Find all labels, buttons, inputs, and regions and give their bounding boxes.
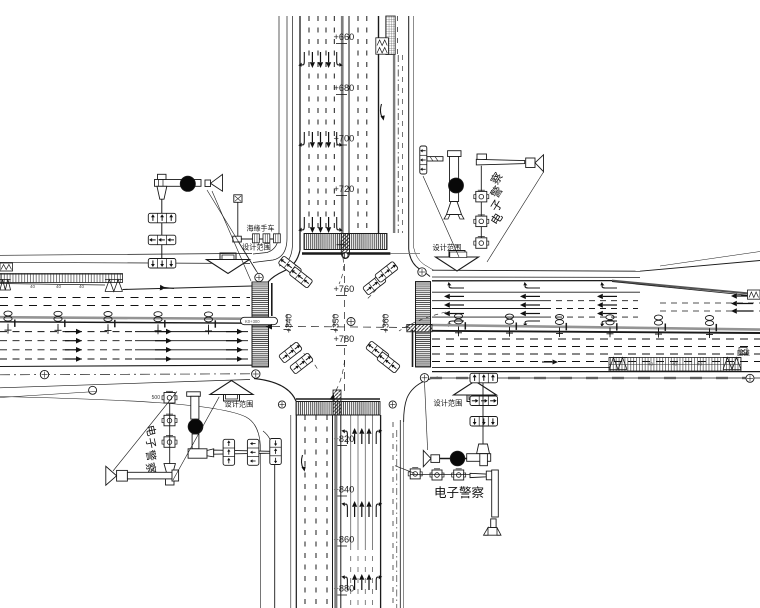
svg-text:+680: +680 (334, 83, 355, 93)
svg-text:设计范围: 设计范围 (433, 243, 462, 252)
svg-text:电子警察: 电子警察 (434, 485, 485, 500)
svg-text:40: 40 (648, 362, 654, 367)
svg-text:K0+300: K0+300 (245, 319, 260, 324)
svg-text:+340: +340 (284, 314, 294, 333)
svg-text:+780: +780 (334, 334, 355, 344)
svg-text:+350: +350 (331, 314, 341, 333)
svg-text:+660: +660 (334, 32, 355, 42)
svg-text:海缘手车: 海缘手车 (247, 224, 275, 233)
svg-text:设计范围: 设计范围 (225, 400, 254, 409)
svg-text:40: 40 (697, 362, 703, 367)
svg-text:500: 500 (152, 395, 161, 401)
svg-text:40: 40 (30, 284, 36, 289)
svg-text:+700: +700 (334, 134, 355, 144)
svg-text:+760: +760 (334, 284, 355, 294)
svg-text:+720: +720 (334, 184, 355, 194)
svg-text:设计范围: 设计范围 (434, 399, 463, 408)
svg-text:40: 40 (672, 362, 678, 367)
svg-text:+360: +360 (381, 314, 391, 333)
svg-text:设计范围: 设计范围 (242, 243, 271, 252)
